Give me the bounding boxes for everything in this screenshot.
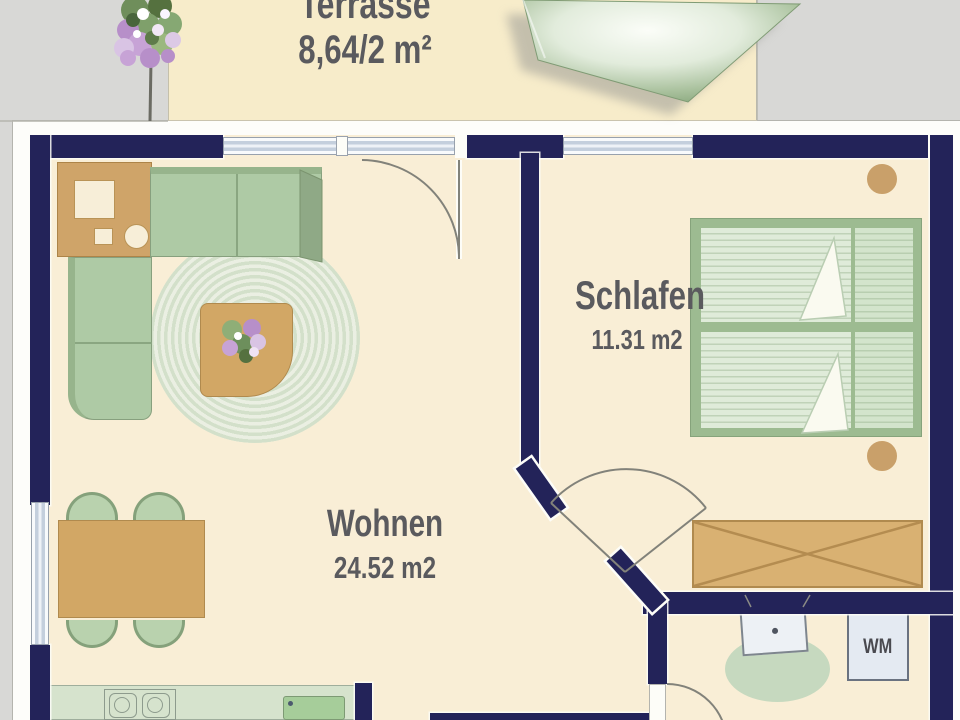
tree <box>114 0 182 121</box>
table-plant <box>222 319 266 363</box>
living-area-label: 24.52 m2 <box>323 552 448 583</box>
terrace-name-label: Terrasse <box>268 0 463 25</box>
terrace-area-label: 8,64/2 m² <box>268 30 463 70</box>
terrace-door-swing <box>362 160 459 259</box>
floor-plan: WM <box>0 0 960 720</box>
wall-diagonal <box>529 471 653 599</box>
bedroom-area-label: 11.31 m2 <box>575 326 700 354</box>
plan-details-layer <box>0 0 960 720</box>
basin-mounts <box>745 595 810 607</box>
bathroom-door-swing <box>667 684 727 720</box>
sofa-armrest <box>300 170 322 262</box>
bedroom-name-label: Schlafen <box>570 276 710 316</box>
roof-awning <box>506 0 800 115</box>
living-name-label: Wohnen <box>327 505 444 543</box>
wardrobe-cross <box>694 522 921 586</box>
bed-folds <box>800 238 848 433</box>
